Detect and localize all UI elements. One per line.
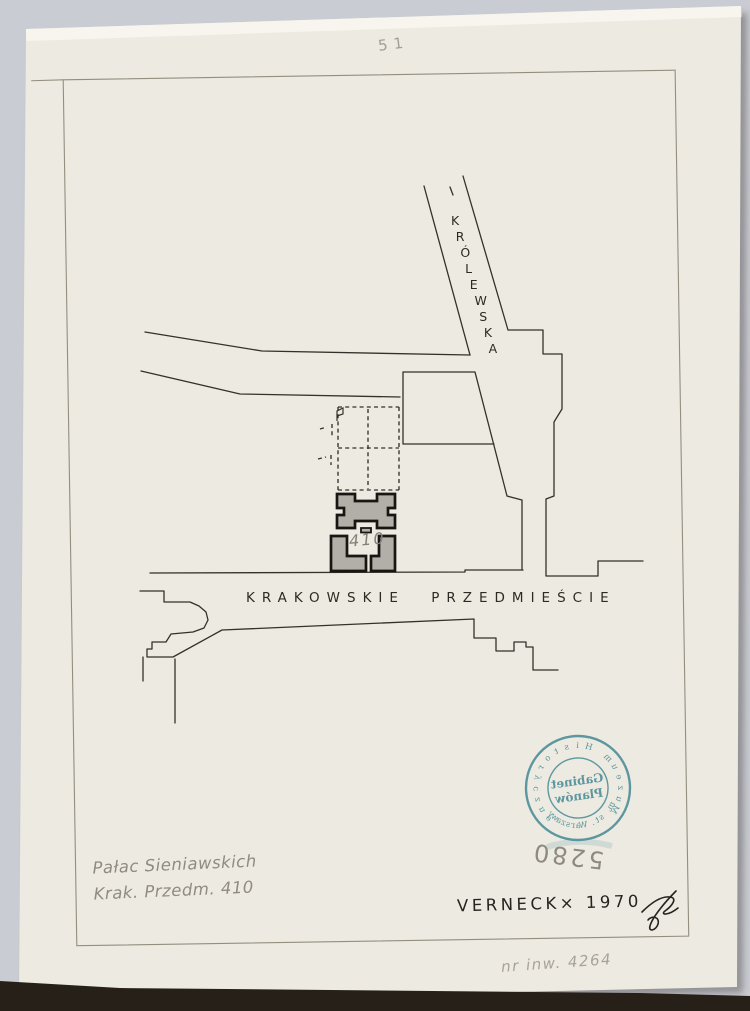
corner-number: 51 [377, 33, 410, 55]
street-letter: Ó [460, 245, 470, 260]
street-letter: K [484, 325, 492, 340]
stamp-ring-letter: z [615, 785, 625, 790]
pencil-caption: Pałac SieniawskichKrak. Przedm. 410 [92, 848, 258, 907]
street-label-krakowskie-przedmiescie: KRAKOWSKIE PRZEDMIEŚCIE [246, 590, 616, 606]
caption-line2: Krak. Przedm. 410 [93, 878, 254, 904]
street-letter: K [451, 213, 459, 228]
street-letter: S [479, 309, 487, 324]
stamp-ring-letter: c [531, 786, 541, 791]
street-letter: R [456, 229, 465, 244]
street-letter: L [465, 261, 472, 276]
caption-line1: Pałac Sieniawskich [92, 851, 257, 877]
building-number: 410 [348, 528, 386, 550]
street-letter: W [475, 293, 487, 308]
street-letter: A [489, 341, 498, 356]
street-letter: E [470, 277, 478, 292]
stamp-ring-letter: i [576, 741, 579, 751]
scanned-archive-sheet: Muzeum Historyczne m. st. Warszawy Gabin… [0, 0, 750, 1011]
